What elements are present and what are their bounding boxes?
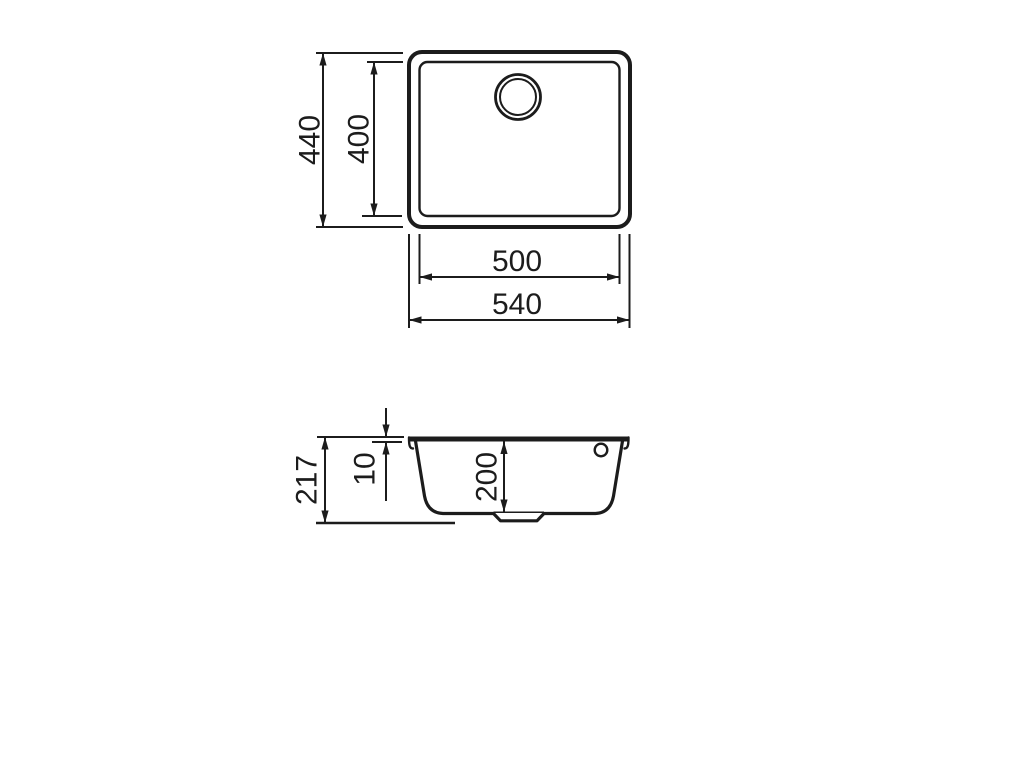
dimension-label-outer-width: 540: [492, 288, 542, 321]
dimension-label-inner-height: 400: [343, 114, 376, 164]
dimension-label-outer-height: 440: [294, 115, 327, 165]
sink-dimension-drawing: 440 400 500 540: [0, 0, 1024, 768]
section-view: 217 10 200: [291, 408, 630, 523]
dim-bowl-depth: 200: [471, 442, 505, 513]
drawing-canvas: 440 400 500 540: [0, 0, 1024, 768]
top-view: 440 400 500 540: [294, 52, 631, 328]
overflow-hole: [595, 444, 608, 457]
dimension-label-rim-thickness: 10: [349, 452, 382, 485]
bowl-profile: [416, 441, 623, 521]
dimension-label-inner-width: 500: [492, 245, 542, 278]
dimension-label-overall-height: 217: [291, 455, 324, 505]
dim-inner-height: 400: [343, 62, 404, 216]
drain-hole-outer: [496, 75, 541, 120]
dimension-label-bowl-depth: 200: [471, 452, 504, 502]
dim-inner-width: 500: [420, 234, 620, 284]
dim-rim-thickness: 10: [349, 408, 403, 501]
